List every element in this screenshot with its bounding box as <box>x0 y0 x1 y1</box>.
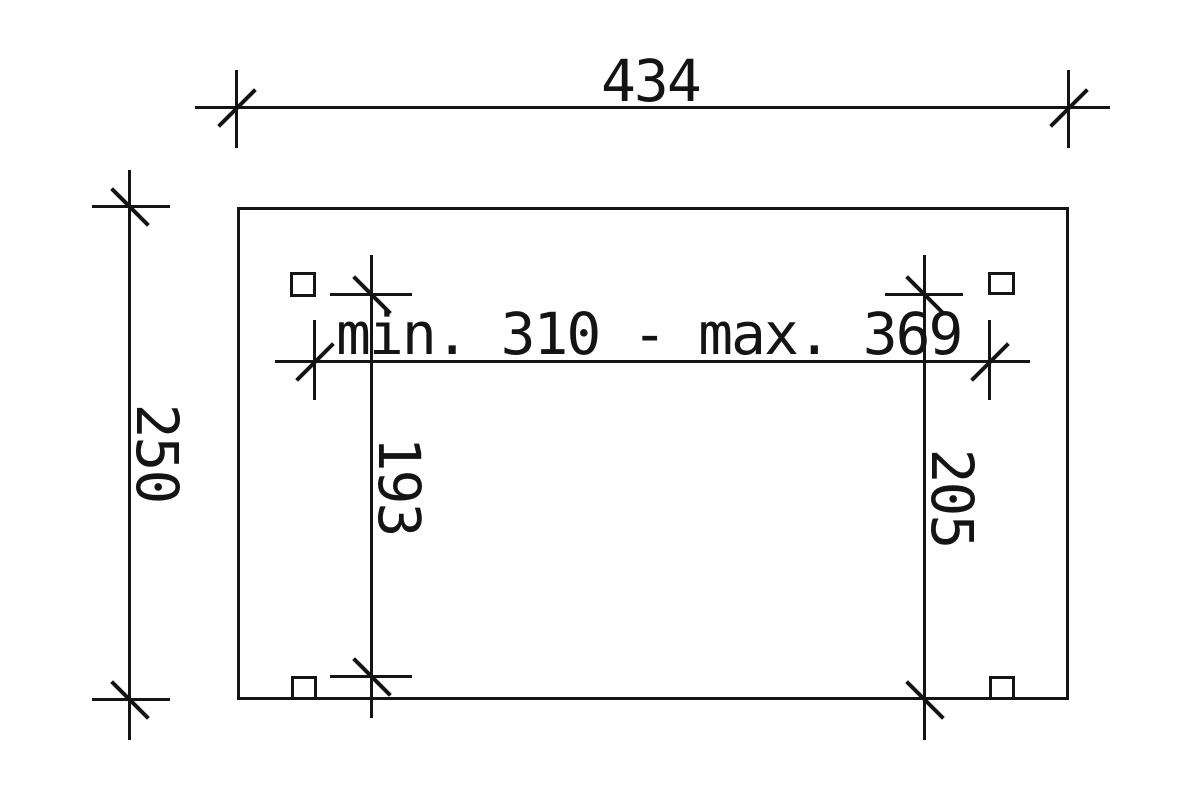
dim-inner-left-height-label: 193 <box>370 426 428 546</box>
dim-inner-right-height-label: 205 <box>923 438 981 558</box>
dim-inner-span-label: min. 310 - max. 369 <box>336 305 961 363</box>
post-bottom-right <box>989 676 1015 700</box>
dim-left-height-label: 250 <box>128 393 186 513</box>
post-bottom-left <box>291 676 317 700</box>
dim-top-width-label: 434 <box>601 52 700 110</box>
post-top-right <box>988 272 1015 295</box>
drawing-canvas: 434 250 min. 310 - max. 369 193 205 <box>0 0 1200 800</box>
post-top-left <box>290 272 316 297</box>
